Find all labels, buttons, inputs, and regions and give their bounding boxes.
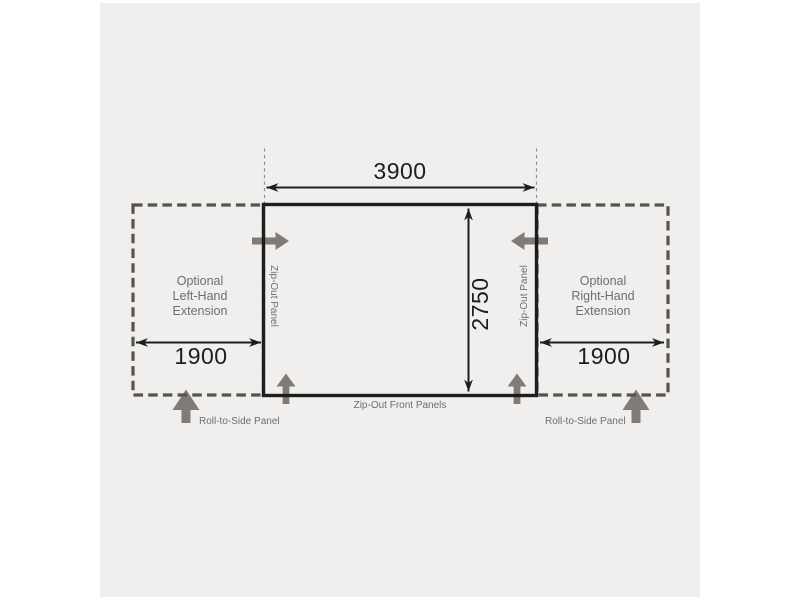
- front-left-zip-out-arrow-icon: [277, 374, 296, 405]
- dimension-diagram: [0, 0, 800, 600]
- main-canopy-outline: [264, 205, 537, 396]
- width-dimension-label: 3900: [340, 159, 460, 183]
- right-extension-label-line2: Right-Hand: [533, 289, 673, 304]
- right-zip-out-panel-label: Zip-Out Panel: [519, 261, 531, 331]
- front-right-zip-out-arrow-icon: [508, 374, 527, 405]
- depth-dimension-label: 2750: [468, 244, 492, 364]
- left-zip-out-arrow-icon: [252, 232, 289, 250]
- left-extension-label-line3: Extension: [130, 304, 270, 319]
- left-zip-out-panel-label: Zip-Out Panel: [267, 261, 279, 331]
- left-extension-label-line1: Optional: [130, 274, 270, 289]
- right-extension-label-line3: Extension: [533, 304, 673, 319]
- right-roll-to-side-label: Roll-to-Side Panel: [545, 416, 625, 428]
- left-extension-dimension-label: 1900: [141, 344, 261, 368]
- right-extension-label-line1: Optional: [533, 274, 673, 289]
- left-extension-label-line2: Left-Hand: [130, 289, 270, 304]
- right-extension-dimension-label: 1900: [544, 344, 664, 368]
- right-zip-out-arrow-icon: [511, 232, 548, 250]
- diagram-canvas: 3900 2750 1900 1900 Optional Left-Hand E…: [0, 0, 800, 600]
- left-roll-to-side-label: Roll-to-Side Panel: [199, 416, 279, 428]
- right-extension-label: Optional Right-Hand Extension: [533, 274, 673, 319]
- left-extension-label: Optional Left-Hand Extension: [130, 274, 270, 319]
- zip-out-front-panels-label: Zip-Out Front Panels: [320, 400, 480, 412]
